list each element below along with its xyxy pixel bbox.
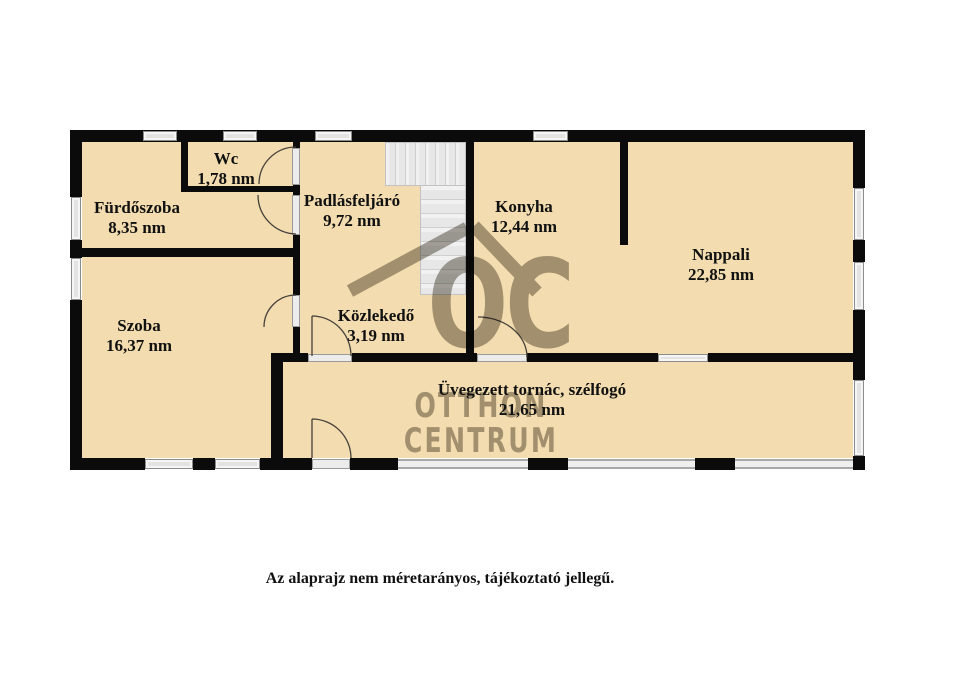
- room-area: 22,85 nm: [688, 265, 754, 285]
- room-name: Padlásfeljáró: [304, 191, 400, 211]
- room-name: Nappali: [688, 245, 754, 265]
- room-area: 3,19 nm: [338, 326, 415, 346]
- room-area: 1,78 nm: [197, 169, 255, 189]
- room-label-wc: Wc 1,78 nm: [197, 149, 255, 189]
- door-arc-room: [264, 295, 296, 327]
- room-name: Konyha: [491, 197, 557, 217]
- room-label-nappali: Nappali 22,85 nm: [688, 245, 754, 285]
- room-name: Üvegezett tornác, szélfogó: [438, 380, 626, 400]
- room-area: 16,37 nm: [106, 336, 172, 356]
- room-label-padlasfeljaro: Padlásfeljáró 9,72 nm: [304, 191, 400, 231]
- room-label-kozlekedo: Közlekedő 3,19 nm: [338, 306, 415, 346]
- door-arc-kitchen: [478, 317, 527, 357]
- door-arc-entrance: [312, 419, 351, 458]
- room-name: Szoba: [106, 316, 172, 336]
- door-arc-wc: [259, 147, 296, 184]
- floor-plan-page: OC OTTHON CENTRUM Wc 1,78 nm Fürdőszoba …: [0, 0, 960, 679]
- room-area: 12,44 nm: [491, 217, 557, 237]
- room-name: Fürdőszoba: [94, 198, 180, 218]
- room-name: Wc: [197, 149, 255, 169]
- room-label-konyha: Konyha 12,44 nm: [491, 197, 557, 237]
- room-area: 21,65 nm: [438, 400, 626, 420]
- disclaimer-note: Az alaprajz nem méretarányos, tájékoztat…: [266, 570, 615, 588]
- door-arc-bathroom: [258, 195, 296, 234]
- room-name: Közlekedő: [338, 306, 415, 326]
- room-area: 9,72 nm: [304, 211, 400, 231]
- room-label-tornac: Üvegezett tornác, szélfogó 21,65 nm: [438, 380, 626, 420]
- room-label-furdoszoba: Fürdőszoba 8,35 nm: [94, 198, 180, 238]
- room-label-szoba: Szoba 16,37 nm: [106, 316, 172, 356]
- room-area: 8,35 nm: [94, 218, 180, 238]
